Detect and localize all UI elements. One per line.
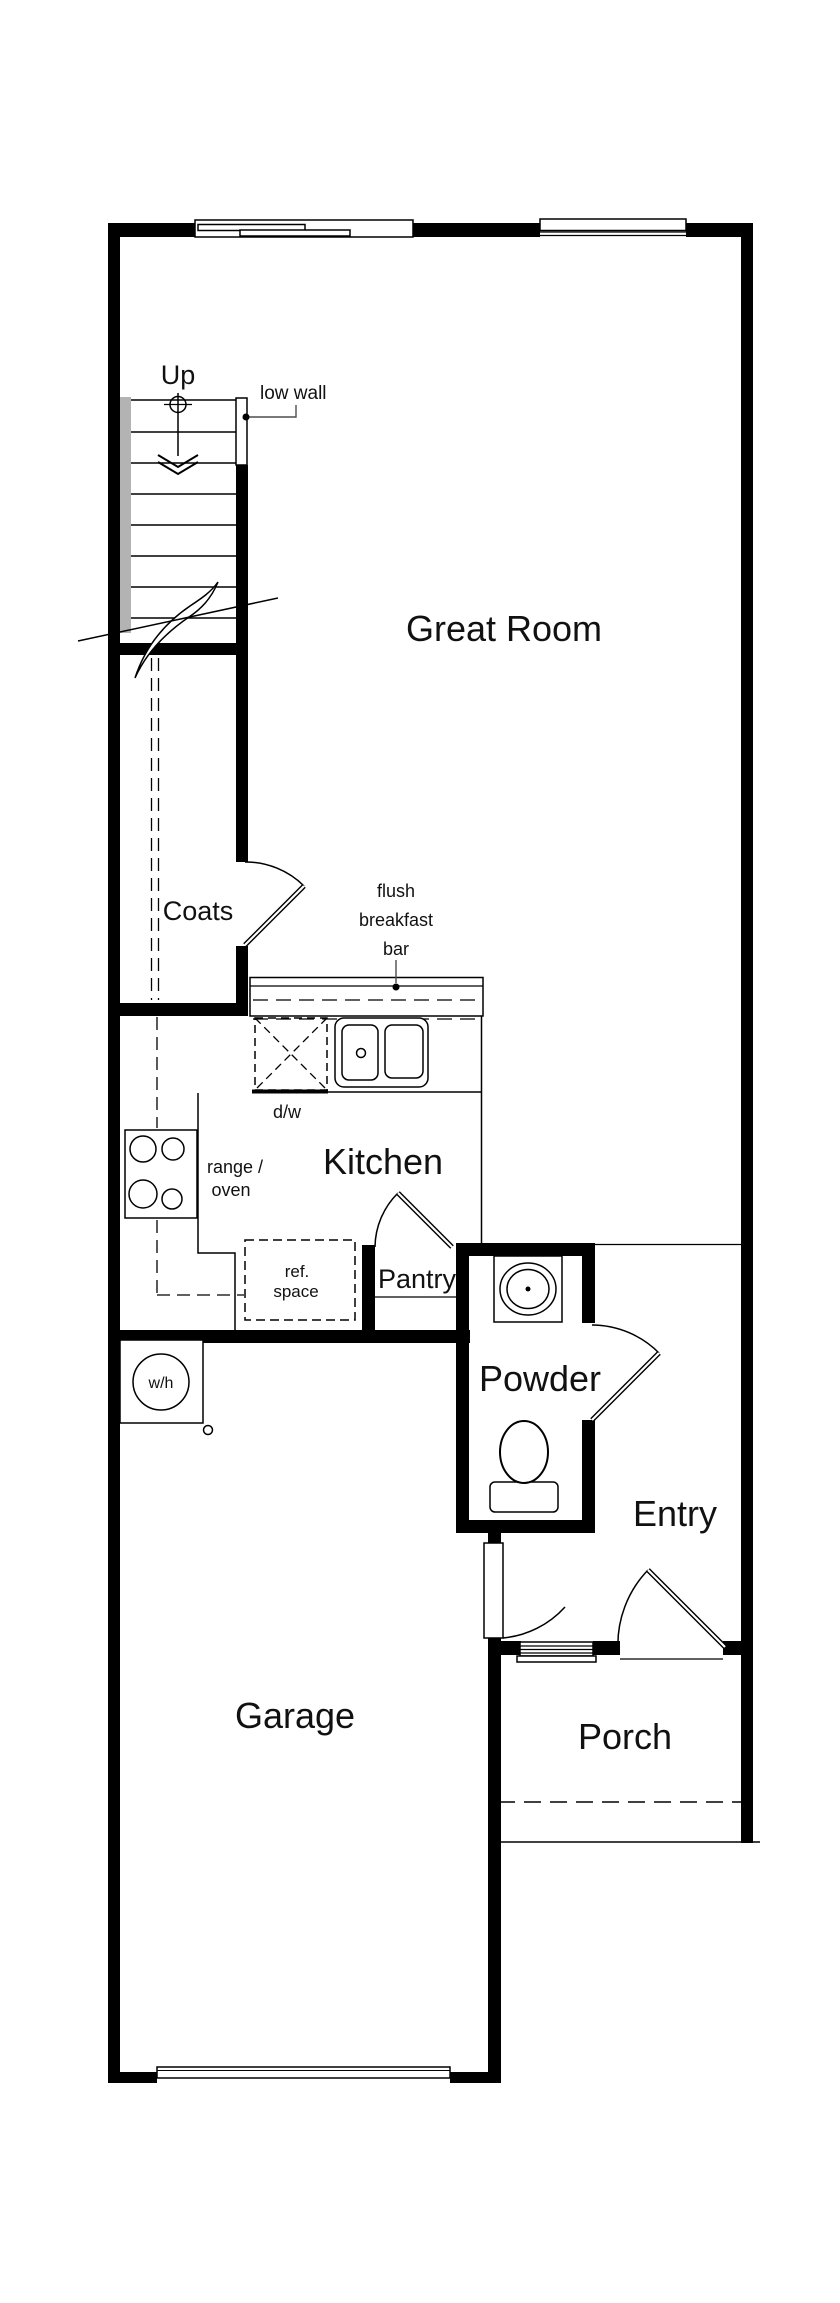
garage-door-panel <box>157 2067 450 2078</box>
sink-basin-left <box>342 1025 378 1080</box>
annotation-leaders <box>243 405 400 991</box>
pantry-left-wall <box>362 1245 375 1330</box>
coats-door-swing-arc <box>245 862 304 886</box>
garage-right-wall <box>488 1638 501 2083</box>
pantry-door-leaf-inner <box>398 1193 452 1247</box>
toilet-tank <box>490 1482 558 1512</box>
window-right-sash <box>540 219 686 231</box>
pantry-door-swing-arc <box>375 1193 398 1247</box>
stair-right-wall <box>236 465 248 643</box>
breakfast-bar-leader-dot <box>393 984 400 991</box>
coats-bottom-wall <box>108 1003 248 1016</box>
low-wall <box>236 398 247 465</box>
powder-door-swing-arc <box>592 1325 659 1353</box>
breakfast-bar-label-line2: breakfast <box>359 910 433 930</box>
ref-space-label-line1: ref. <box>285 1262 310 1281</box>
right-exterior-wall <box>741 223 753 1843</box>
entry-bottom-wall-left <box>488 1641 521 1655</box>
coats-door-leaf-inner <box>245 886 304 945</box>
garage-entry-door-leaf <box>484 1543 503 1638</box>
kitchen-label: Kitchen <box>323 1141 443 1182</box>
stair-bottom-wall <box>108 643 248 655</box>
front-door-swing-arc <box>618 1570 648 1650</box>
entry-bottom-wall-right <box>723 1641 753 1655</box>
garage-entry-door-jamb <box>488 1531 501 1543</box>
powder-right-wall-stub <box>582 1420 595 1520</box>
range-oven-label-line1: range / <box>207 1157 263 1177</box>
ref-space-label-line2: space <box>273 1282 318 1301</box>
front-door-leaf-inner <box>648 1570 725 1647</box>
entry-label: Entry <box>633 1493 717 1534</box>
powder-bottom-wall <box>456 1520 595 1533</box>
pantry-label: Pantry <box>378 1264 457 1294</box>
toilet-bowl <box>500 1421 548 1483</box>
powder-top-wall <box>456 1243 595 1256</box>
coats-right-wall <box>236 655 248 862</box>
porch-area <box>498 1802 760 1842</box>
up-label: Up <box>161 360 196 390</box>
entry-bottom-wall-middle <box>593 1641 620 1655</box>
range-oven <box>125 1130 197 1218</box>
garage-bottom-wall-right <box>450 2072 501 2083</box>
low-wall-leader-line <box>249 405 296 417</box>
dishwasher-label: d/w <box>273 1102 302 1122</box>
top-wall-segment-left <box>108 223 195 237</box>
coats-right-wall-stub <box>236 946 248 1003</box>
powder-right-wall <box>582 1243 595 1323</box>
annotation-labels: Up low wall flush breakfast bar d/w rang… <box>148 360 433 1392</box>
breakfast-bar-counter <box>250 978 483 1017</box>
garage-entry-door-swing-arc <box>503 1607 565 1638</box>
powder-left-wall <box>456 1243 469 1533</box>
window-left-sash-2 <box>240 230 350 236</box>
water-heater-label: w/h <box>148 1375 174 1392</box>
powder-door-leaf-inner <box>592 1353 659 1420</box>
breakfast-bar-label-line3: bar <box>383 939 409 959</box>
top-wall-segment-middle <box>413 223 540 237</box>
floor-drain-icon <box>204 1426 213 1435</box>
powder-sink-drain-icon <box>526 1287 531 1292</box>
garage-bottom-wall-left <box>108 2072 157 2083</box>
low-wall-label: low wall <box>260 383 327 404</box>
range-oven-label-line2: oven <box>211 1180 250 1200</box>
coats-label: Coats <box>163 896 234 926</box>
coats-closet <box>152 658 305 1000</box>
breakfast-bar-label-line1: flush <box>377 881 415 901</box>
low-wall-leader-dot <box>243 414 250 421</box>
great-room-label: Great Room <box>406 608 602 649</box>
sink-basin-right <box>385 1025 423 1078</box>
entry-window-sill <box>517 1656 596 1662</box>
stair-handrail <box>120 397 131 633</box>
garage-label: Garage <box>235 1695 355 1736</box>
left-exterior-wall <box>108 223 120 2083</box>
stair-break-symbol <box>135 582 218 678</box>
powder-label: Powder <box>479 1358 601 1399</box>
floor-plan-drawing: Great Room Kitchen Powder Entry Garage P… <box>0 0 840 2303</box>
porch-label: Porch <box>578 1716 672 1757</box>
floor-plan-page: Great Room Kitchen Powder Entry Garage P… <box>0 0 840 2303</box>
